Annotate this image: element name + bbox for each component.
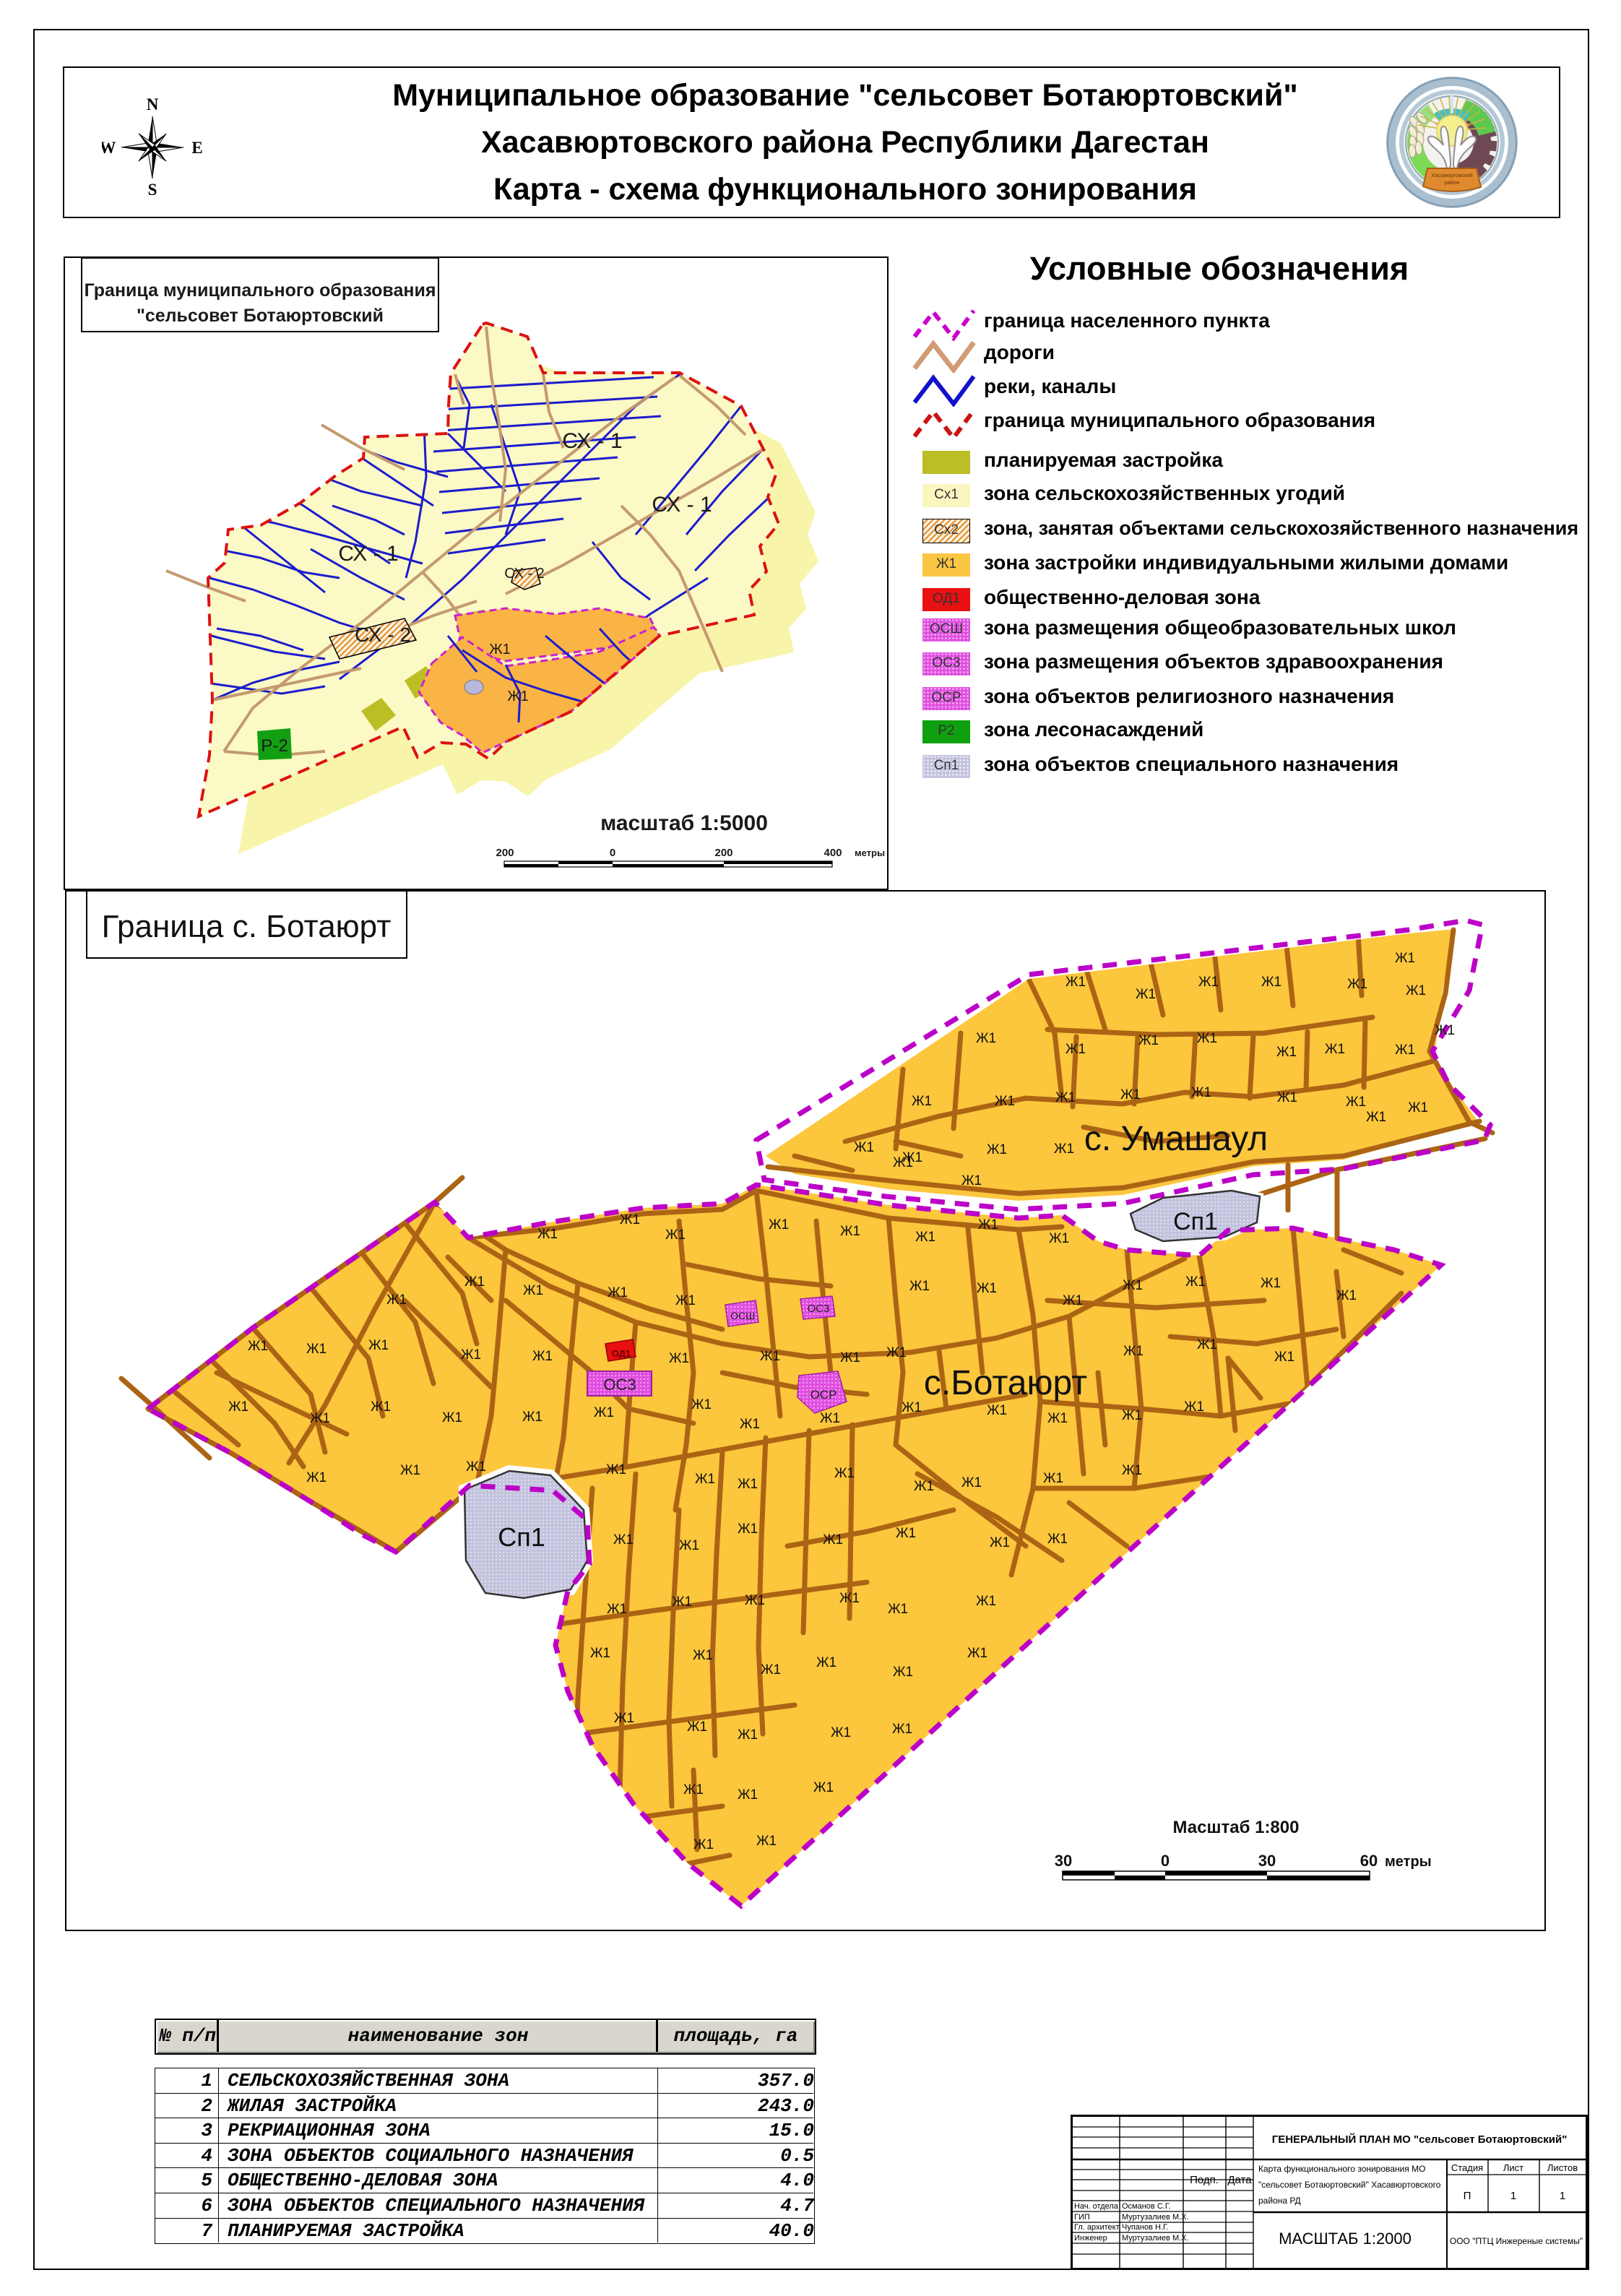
- svg-text:с.Ботаюрт: с.Ботаюрт: [924, 1364, 1087, 1402]
- svg-text:Масштаб 1:800: Масштаб 1:800: [1173, 1818, 1300, 1837]
- svg-text:Ж1: Ж1: [813, 1780, 834, 1795]
- svg-text:Ж1: Ж1: [248, 1339, 268, 1354]
- svg-text:ГИП: ГИП: [1074, 2213, 1090, 2222]
- svg-text:СХ - 2: СХ - 2: [504, 566, 545, 582]
- svg-text:Лист: Лист: [1503, 2162, 1523, 2173]
- svg-text:Сп1: Сп1: [1173, 1208, 1218, 1235]
- svg-text:ОСШ: ОСШ: [730, 1310, 755, 1321]
- svg-text:Ж1: Ж1: [368, 1338, 389, 1353]
- svg-text:Ж1: Ж1: [740, 1417, 760, 1432]
- svg-text:Ж1: Ж1: [1065, 975, 1086, 990]
- svg-text:Ж1: Ж1: [854, 1140, 874, 1155]
- svg-text:Листов: Листов: [1547, 2162, 1578, 2173]
- svg-text:метры: метры: [855, 847, 885, 858]
- svg-text:Ж1: Ж1: [1276, 1045, 1297, 1060]
- svg-text:СХ - 1: СХ - 1: [652, 493, 712, 517]
- svg-text:Ж1: Ж1: [1122, 1408, 1142, 1423]
- svg-text:Ж1: Ж1: [507, 689, 529, 704]
- svg-text:Подп.: Подп.: [1190, 2174, 1219, 2186]
- svg-text:W: W: [102, 139, 116, 157]
- svg-text:Ж1: Ж1: [1277, 1090, 1297, 1105]
- svg-text:Ж1: Ж1: [620, 1212, 640, 1227]
- svg-text:Ж1: Ж1: [967, 1646, 987, 1661]
- svg-text:Ж1: Ж1: [607, 1602, 627, 1617]
- svg-text:Ж1: Ж1: [679, 1538, 699, 1553]
- svg-text:Ж1: Ж1: [693, 1648, 713, 1663]
- svg-text:200: 200: [496, 847, 514, 859]
- svg-text:Ж1: Ж1: [1191, 1085, 1211, 1100]
- svg-text:Муртузалиев М.Х.: Муртузалиев М.Х.: [1122, 2213, 1189, 2222]
- svg-text:30: 30: [1258, 1852, 1276, 1870]
- svg-text:района РД: района РД: [1258, 2196, 1301, 2206]
- svg-text:Ж1: Ж1: [532, 1349, 553, 1364]
- svg-text:Ж1: Ж1: [961, 1173, 982, 1188]
- svg-text:Граница муниципального образов: Граница муниципального образования: [85, 280, 436, 301]
- svg-text:Ж1: Ж1: [834, 1466, 855, 1481]
- svg-text:Ж1: Ж1: [738, 1477, 758, 1492]
- svg-text:Османов С.Г.: Османов С.Г.: [1122, 2202, 1171, 2211]
- svg-text:Муртузалиев М.Х.: Муртузалиев М.Х.: [1122, 2234, 1189, 2243]
- svg-text:Ж1: Ж1: [523, 1283, 543, 1298]
- svg-text:Ж1: Ж1: [912, 1094, 932, 1109]
- svg-text:Ж1: Ж1: [669, 1351, 689, 1366]
- svg-text:Ж1: Ж1: [915, 1230, 935, 1245]
- svg-text:Ж1: Ж1: [691, 1397, 712, 1412]
- svg-text:Ж1: Ж1: [1395, 951, 1415, 966]
- svg-text:S: S: [148, 181, 157, 199]
- svg-text:Ж1: Ж1: [756, 1834, 777, 1849]
- svg-text:Стадия: Стадия: [1451, 2162, 1483, 2173]
- svg-text:Ж1: Ж1: [1047, 1411, 1068, 1426]
- svg-text:Ж1: Ж1: [1336, 1288, 1357, 1303]
- svg-text:Ж1: Ж1: [1395, 1043, 1415, 1058]
- svg-text:Ж1: Ж1: [1325, 1042, 1345, 1057]
- svg-text:Ж1: Ж1: [310, 1411, 330, 1426]
- svg-text:Ж1: Ж1: [961, 1475, 982, 1490]
- svg-text:Ж1: Ж1: [608, 1285, 628, 1300]
- svg-text:Ж1: Ж1: [840, 1350, 860, 1365]
- svg-text:Дата: Дата: [1227, 2174, 1252, 2186]
- svg-text:Ж1: Ж1: [914, 1479, 934, 1494]
- svg-text:с. Умашаул: с. Умашаул: [1084, 1120, 1268, 1158]
- svg-text:Ж1: Ж1: [687, 1719, 707, 1735]
- svg-text:"сельсовет Ботаюртовский" Хаса: "сельсовет Ботаюртовский" Хасавюртовског…: [1258, 2180, 1441, 2190]
- svg-text:Ж1: Ж1: [886, 1345, 907, 1360]
- svg-text:Ж1: Ж1: [1435, 1023, 1455, 1038]
- svg-text:0: 0: [610, 847, 615, 859]
- svg-text:СХ - 1: СХ - 1: [562, 429, 622, 453]
- svg-text:Ж1: Ж1: [892, 1722, 912, 1737]
- svg-text:Гл. архитект.: Гл. архитект.: [1074, 2223, 1120, 2232]
- svg-text:Ж1: Ж1: [683, 1782, 704, 1797]
- svg-text:Ж1: Ж1: [306, 1342, 327, 1357]
- svg-text:Ж1: Ж1: [760, 1349, 780, 1364]
- svg-text:СХ - 1: СХ - 1: [338, 542, 398, 566]
- svg-text:Хасавюртовский: Хасавюртовский: [1431, 172, 1473, 178]
- svg-text:Карта функционального зонирова: Карта функционального зонирования МО: [1258, 2164, 1425, 2174]
- svg-text:Ж1: Ж1: [1197, 1337, 1217, 1352]
- svg-text:Ж1: Ж1: [1055, 1090, 1076, 1105]
- svg-text:Ж1: Ж1: [306, 1470, 327, 1485]
- svg-text:Ж1: Ж1: [976, 1594, 996, 1609]
- svg-text:Ж1: Ж1: [745, 1593, 765, 1608]
- svg-text:Ж1: Ж1: [995, 1094, 1015, 1109]
- svg-text:Ж1: Ж1: [675, 1293, 696, 1308]
- svg-text:Ж1: Ж1: [1198, 975, 1219, 990]
- svg-text:Ж1: Ж1: [386, 1292, 407, 1308]
- svg-text:Ж1: Ж1: [594, 1405, 614, 1420]
- svg-text:Ж1: Ж1: [489, 642, 511, 657]
- svg-text:N: N: [147, 95, 159, 113]
- svg-text:Ж1: Ж1: [902, 1400, 922, 1415]
- svg-text:Ж1: Ж1: [614, 1711, 634, 1726]
- svg-text:60: 60: [1360, 1852, 1378, 1870]
- svg-text:Ж1: Ж1: [1185, 1274, 1206, 1290]
- svg-text:Ж1: Ж1: [613, 1532, 634, 1548]
- svg-text:Ж1: Ж1: [893, 1665, 913, 1680]
- svg-text:Граница с. Ботаюрт: Граница с. Ботаюрт: [102, 909, 392, 944]
- svg-text:Ж1: Ж1: [1138, 1033, 1159, 1048]
- svg-text:Ж1: Ж1: [987, 1142, 1007, 1157]
- svg-text:Ж1: Ж1: [976, 1031, 996, 1046]
- svg-text:Сп1: Сп1: [498, 1522, 545, 1552]
- svg-text:Ж1: Ж1: [738, 1522, 758, 1537]
- svg-text:Ж1: Ж1: [1366, 1110, 1386, 1125]
- svg-text:Ж1: Ж1: [738, 1787, 758, 1803]
- svg-text:Ж1: Ж1: [1123, 1278, 1143, 1293]
- svg-text:ОС3: ОС3: [808, 1303, 830, 1315]
- svg-text:Чупанов Н.Г.: Чупанов Н.Г.: [1122, 2223, 1169, 2232]
- svg-text:МАСШТАБ 1:2000: МАСШТАБ 1:2000: [1279, 2230, 1412, 2248]
- svg-text:Ж1: Ж1: [1047, 1532, 1068, 1547]
- svg-text:Ж1: Ж1: [1408, 1100, 1428, 1115]
- svg-text:"сельсовет Ботаюртовский: "сельсовет Ботаюртовский: [137, 306, 384, 326]
- svg-text:Ж1: Ж1: [978, 1217, 998, 1233]
- svg-text:Нач. отдела: Нач. отдела: [1074, 2202, 1119, 2211]
- svg-text:Ж1: Ж1: [816, 1655, 837, 1670]
- svg-text:Инженер: Инженер: [1074, 2234, 1107, 2243]
- svg-text:Ж1: Ж1: [823, 1532, 843, 1548]
- svg-text:Ж1: Ж1: [1054, 1141, 1074, 1157]
- svg-text:0: 0: [1161, 1852, 1170, 1870]
- svg-text:Ж1: Ж1: [1197, 1031, 1217, 1046]
- svg-text:Ж1: Ж1: [665, 1227, 686, 1243]
- svg-text:Ж1: Ж1: [1184, 1399, 1204, 1415]
- svg-text:Ж1: Ж1: [693, 1837, 714, 1852]
- svg-text:200: 200: [714, 847, 732, 859]
- svg-text:Ж1: Ж1: [761, 1662, 781, 1678]
- svg-text:E: E: [191, 139, 202, 157]
- svg-text:Ж1: Ж1: [466, 1459, 486, 1475]
- svg-text:Ж1: Ж1: [672, 1594, 692, 1610]
- svg-text:Ж1: Ж1: [909, 1279, 930, 1294]
- svg-text:Ж1: Ж1: [769, 1217, 789, 1233]
- svg-text:Ж1: Ж1: [987, 1403, 1007, 1418]
- svg-text:400: 400: [824, 847, 842, 859]
- svg-text:Ж1: Ж1: [840, 1224, 860, 1239]
- svg-text:Ж1: Ж1: [400, 1463, 420, 1478]
- svg-text:Ж1: Ж1: [1123, 1344, 1144, 1359]
- svg-text:Ж1: Ж1: [371, 1399, 391, 1415]
- svg-text:Ж1: Ж1: [896, 1526, 916, 1541]
- svg-text:1: 1: [1560, 2190, 1565, 2202]
- svg-text:Ж1: Ж1: [1261, 975, 1281, 990]
- svg-text:Ж1: Ж1: [522, 1410, 543, 1425]
- svg-text:Ж1: Ж1: [1406, 983, 1426, 998]
- svg-text:Ж1: Ж1: [831, 1725, 851, 1740]
- svg-text:метры: метры: [1385, 1854, 1432, 1870]
- svg-text:Ж1: Ж1: [839, 1591, 860, 1606]
- svg-text:Ж1: Ж1: [1261, 1276, 1281, 1291]
- svg-text:Ж1: Ж1: [590, 1646, 610, 1661]
- svg-text:Ж1: Ж1: [228, 1399, 248, 1415]
- svg-text:Ж1: Ж1: [1122, 1463, 1142, 1478]
- svg-text:ОД1: ОД1: [612, 1348, 631, 1359]
- svg-text:Ж1: Ж1: [1347, 977, 1367, 992]
- svg-text:ОС3: ОС3: [603, 1376, 636, 1394]
- svg-text:Ж1: Ж1: [1274, 1350, 1294, 1365]
- svg-text:Ж1: Ж1: [977, 1281, 997, 1296]
- svg-text:Ж1: Ж1: [1346, 1095, 1366, 1110]
- svg-text:Ж1: Ж1: [442, 1410, 462, 1425]
- svg-text:Ж1: Ж1: [606, 1462, 626, 1477]
- svg-text:Ж1: Ж1: [820, 1411, 840, 1426]
- svg-text:Ж1: Ж1: [537, 1227, 558, 1242]
- svg-text:район: район: [1445, 179, 1460, 186]
- svg-text:СХ - 2: СХ - 2: [355, 623, 411, 646]
- svg-text:ГЕНЕРАЛЬНЫЙ ПЛАН МО "сельсовет: ГЕНЕРАЛЬНЫЙ ПЛАН МО "сельсовет Ботаюртов…: [1272, 2133, 1568, 2146]
- svg-text:1: 1: [1510, 2190, 1516, 2202]
- svg-text:ООО "ПТЦ Инжереные системы": ООО "ПТЦ Инжереные системы": [1450, 2236, 1583, 2246]
- svg-text:П: П: [1464, 2190, 1471, 2202]
- svg-text:Ж1: Ж1: [1136, 987, 1156, 1002]
- svg-text:Ж1: Ж1: [990, 1535, 1010, 1550]
- svg-text:Ж1: Ж1: [888, 1602, 908, 1617]
- svg-text:Ж1: Ж1: [1120, 1087, 1141, 1102]
- svg-text:30: 30: [1055, 1852, 1072, 1870]
- svg-text:Ж1: Ж1: [695, 1472, 715, 1487]
- svg-text:Ж1: Ж1: [1043, 1471, 1063, 1486]
- svg-text:Ж1: Ж1: [1063, 1293, 1083, 1308]
- svg-text:Ж1: Ж1: [461, 1347, 481, 1363]
- svg-text:Ж1: Ж1: [738, 1727, 758, 1743]
- svg-text:Ж1: Ж1: [464, 1274, 485, 1290]
- svg-text:Р-2: Р-2: [261, 736, 288, 756]
- svg-text:Ж1: Ж1: [1049, 1231, 1069, 1246]
- svg-text:масштаб 1:5000: масштаб 1:5000: [600, 811, 768, 835]
- svg-text:ОСР: ОСР: [810, 1388, 837, 1402]
- svg-text:Ж1: Ж1: [1065, 1042, 1086, 1057]
- svg-text:Ж1: Ж1: [893, 1155, 913, 1170]
